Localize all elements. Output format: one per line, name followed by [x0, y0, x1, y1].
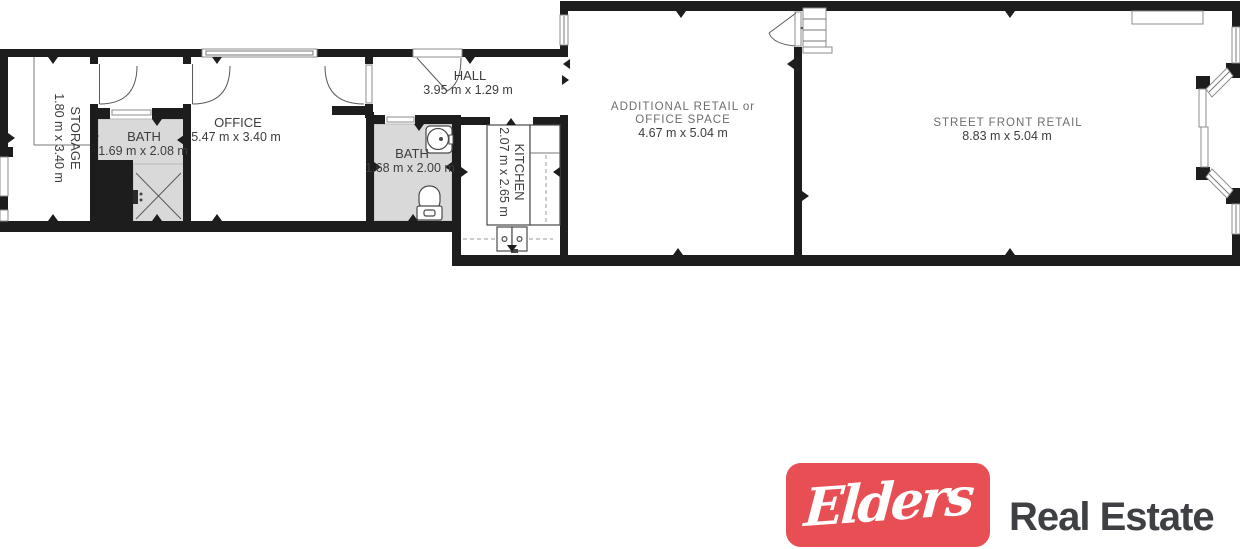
floor-plan-svg: STORAGE 1.80 m x 3.40 m BATH 1.69 m x 2.… [0, 0, 1240, 549]
bath2-label: BATH [395, 146, 429, 161]
walls [0, 1, 1240, 266]
wall-chunk [90, 160, 133, 224]
divider-shelf-icon [803, 8, 832, 53]
bath2-door-icon [387, 117, 414, 122]
bath1-door-icon [112, 110, 151, 115]
bath2-dims: 1.68 m x 2.00 m [365, 161, 455, 175]
additional-retail-dims: 4.67 m x 5.04 m [638, 126, 728, 140]
elders-logo-script: Elders [802, 465, 974, 544]
kitchen-label: KITCHEN [512, 143, 527, 200]
street-front-retail-label: STREET FRONT RETAIL [933, 117, 1082, 129]
storage-door-icon [100, 64, 138, 104]
office-right-door-icon [325, 65, 372, 104]
entry-door-window-icon [413, 49, 462, 57]
elders-logo: Elders [786, 463, 990, 547]
office-dims: 5.47 m x 3.40 m [191, 130, 281, 144]
wall-pier [0, 147, 13, 157]
shopfront-awning [1132, 11, 1203, 24]
left-wall-window-icon [0, 157, 8, 221]
office-window-icon [202, 49, 317, 57]
bath1-dims: 1.69 m x 2.08 m [98, 144, 188, 158]
office-left-door-icon [193, 64, 231, 104]
additional-retail-label-line1: ADDITIONAL RETAIL or [611, 101, 755, 113]
street-front-retail-dims: 8.83 m x 5.04 m [962, 129, 1052, 143]
bath1-label: BATH [127, 129, 161, 144]
kitchen-dims: 2.07 m x 2.65 m [497, 127, 511, 217]
retail-left-window-icon [560, 15, 568, 45]
storage-label: STORAGE [68, 106, 83, 170]
toilet-icon [417, 186, 442, 220]
hall-label: HALL [454, 68, 487, 83]
real-estate-wordmark: Real Estate [1009, 495, 1214, 540]
office-label: OFFICE [214, 115, 262, 130]
kitchen-cabinet [530, 125, 560, 225]
hall-dims: 3.95 m x 1.29 m [423, 83, 513, 97]
additional-retail-label-line2: OFFICE SPACE [635, 114, 731, 126]
storage-dims: 1.80 m x 3.40 m [52, 93, 66, 183]
floor-plan-page: STORAGE 1.80 m x 3.40 m BATH 1.69 m x 2.… [0, 0, 1240, 549]
sink-icon [426, 126, 453, 153]
